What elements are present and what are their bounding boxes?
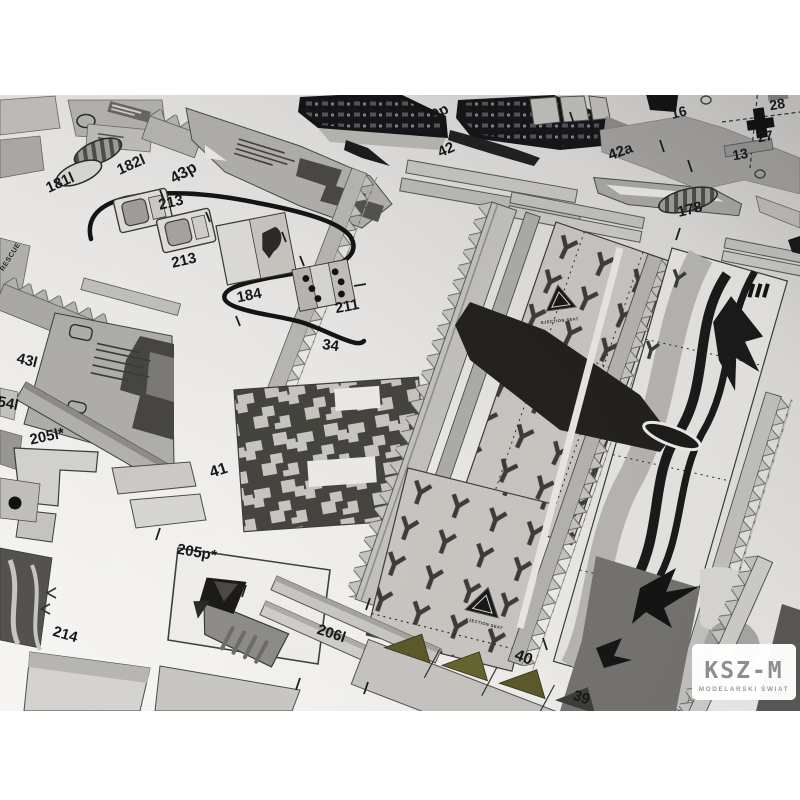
logo-subtitle: MODELARSKI ŚWIAT (699, 684, 789, 693)
part-label-13: 13 (731, 145, 749, 163)
photo-area: 181l182l43p213213184211349p4242a16282713… (0, 79, 800, 769)
part-label-27: 27 (756, 127, 774, 145)
part-label-28: 28 (768, 95, 786, 113)
part-label-54l: 54l (0, 393, 20, 414)
screenshot-root: 181l182l43p213213184211349p4242a16282713… (0, 0, 800, 800)
part-label-34: 34 (321, 336, 341, 355)
model-sheet-photo: 181l182l43p213213184211349p4242a16282713… (0, 0, 800, 800)
logo-title: KSZ-M (704, 658, 783, 684)
photo-vignette (0, 95, 800, 711)
watermark-logo: KSZ-M MODELARSKI ŚWIAT (692, 644, 796, 700)
